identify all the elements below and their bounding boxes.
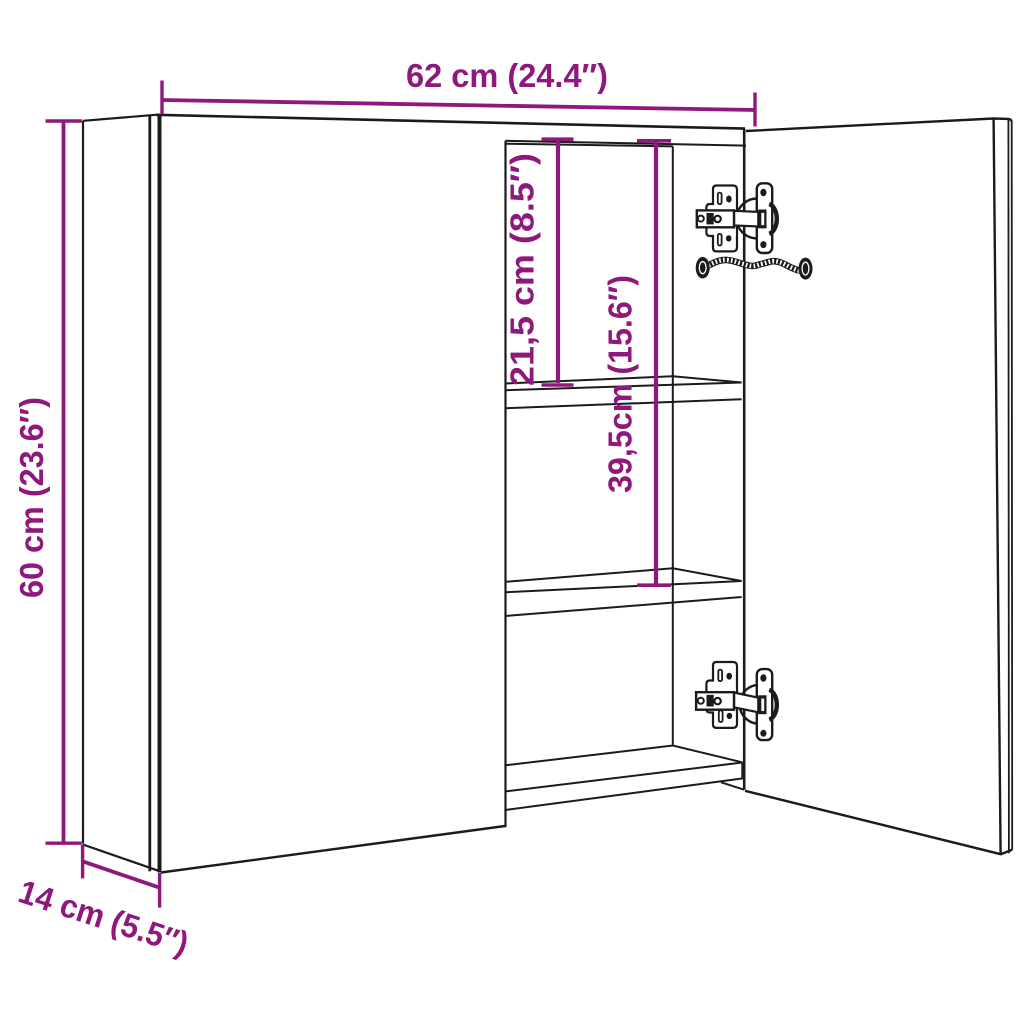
svg-text:60 cm (23.6″): 60 cm (23.6″) bbox=[13, 397, 50, 598]
svg-text:62 cm (24.4″): 62 cm (24.4″) bbox=[406, 57, 608, 94]
svg-text:21,5 cm (8.5″): 21,5 cm (8.5″) bbox=[504, 153, 541, 386]
svg-text:39,5cm (15.6″): 39,5cm (15.6″) bbox=[602, 275, 639, 493]
